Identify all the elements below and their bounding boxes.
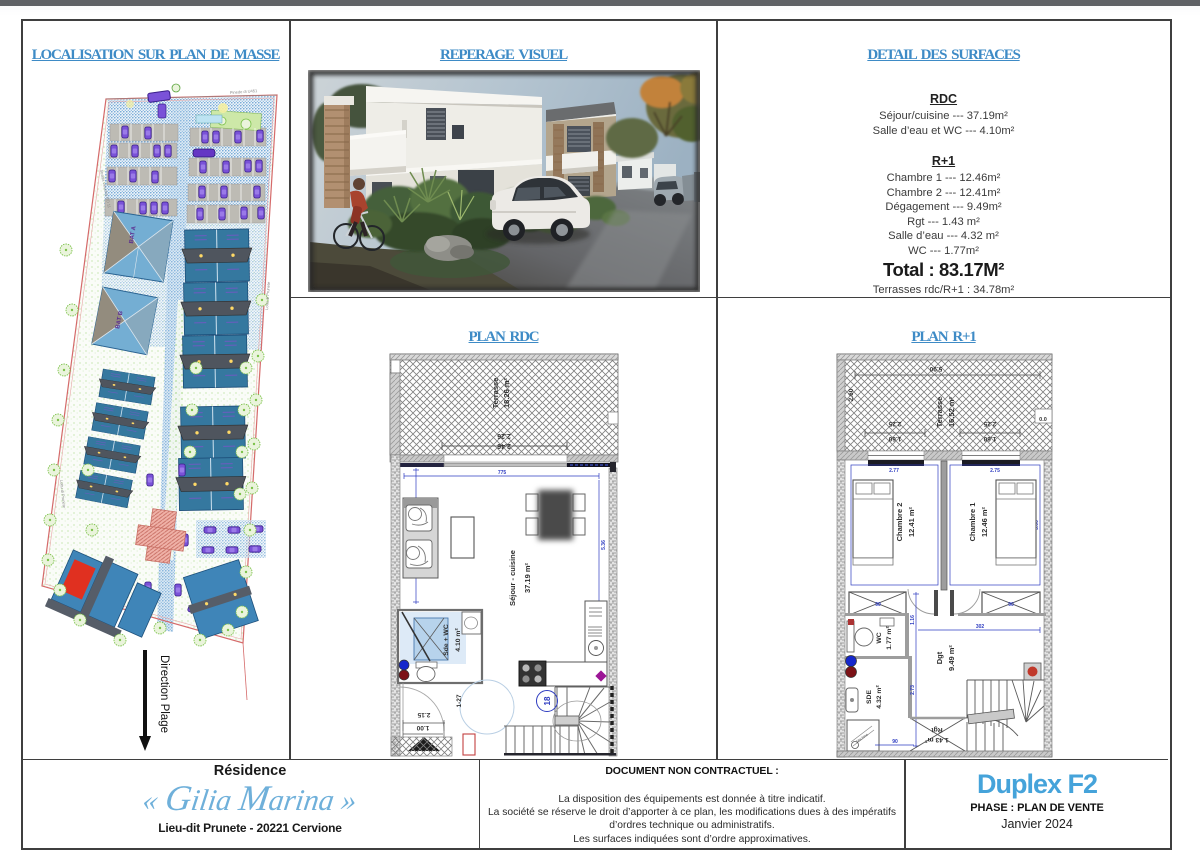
svg-text:12.41 m²: 12.41 m² (907, 506, 916, 537)
svg-text:775: 775 (498, 470, 507, 476)
svg-text:37.19 m²: 37.19 m² (523, 562, 532, 593)
svg-text:2.25: 2.25 (888, 420, 901, 427)
svg-text:Dgt: Dgt (935, 651, 944, 664)
svg-text:Direction Plage: Direction Plage (158, 655, 170, 733)
svg-text:Séjour - cuisine: Séjour - cuisine (508, 550, 517, 606)
svg-text:1.60: 1.60 (983, 435, 996, 442)
svg-text:Sde + WC: Sde + WC (443, 624, 450, 656)
svg-text:1.43 m²: 1.43 m² (925, 736, 949, 743)
svg-text:1.77 m²: 1.77 m² (886, 626, 893, 650)
svg-text:2.77: 2.77 (889, 468, 899, 474)
svg-text:18.26 m²: 18.26 m² (502, 377, 511, 408)
svg-text:18: 18 (543, 696, 552, 705)
svg-text:90: 90 (875, 602, 881, 608)
svg-text:1.16: 1.16 (910, 615, 916, 625)
svg-text:1-27: 1-27 (456, 694, 463, 707)
svg-text:Lottu di Prunete: Lottu di Prunete (264, 281, 271, 310)
svg-text:WC: WC (876, 632, 883, 643)
svg-text:12.46 m²: 12.46 m² (980, 506, 989, 537)
svg-text:2.15: 2.15 (417, 711, 430, 718)
svg-text:302: 302 (976, 624, 985, 630)
svg-text:2.73: 2.73 (910, 685, 916, 695)
svg-text:16.52 m²: 16.52 m² (947, 396, 956, 427)
svg-text:2.26: 2.26 (497, 432, 511, 439)
svg-text:9.49 m²: 9.49 m² (947, 645, 956, 671)
svg-text:90: 90 (892, 739, 898, 745)
svg-text:4.32 m²: 4.32 m² (876, 685, 883, 709)
svg-text:4.10 m²: 4.10 m² (455, 628, 462, 652)
svg-text:2.25: 2.25 (983, 420, 996, 427)
svg-text:Chambre 1: Chambre 1 (968, 503, 977, 542)
svg-text:1.00: 1.00 (416, 724, 429, 731)
svg-text:2.60: 2.60 (848, 388, 855, 401)
svg-text:2.75: 2.75 (990, 468, 1000, 474)
svg-text:5.90: 5.90 (929, 365, 942, 372)
svg-text:SDE: SDE (866, 690, 873, 704)
svg-text:Terrasse: Terrasse (491, 378, 500, 409)
svg-text:90: 90 (1008, 602, 1014, 608)
svg-text:0.0: 0.0 (1039, 417, 1047, 423)
svg-text:1.60: 1.60 (888, 435, 901, 442)
svg-text:2.46: 2.46 (497, 442, 511, 449)
svg-text:Pinede di U451: Pinede di U451 (230, 88, 258, 95)
svg-text:5.36: 5.36 (601, 540, 607, 550)
svg-text:Rgt: Rgt (931, 726, 943, 733)
svg-text:Chambre 2: Chambre 2 (895, 503, 904, 542)
svg-text:Terrasse: Terrasse (935, 397, 944, 428)
